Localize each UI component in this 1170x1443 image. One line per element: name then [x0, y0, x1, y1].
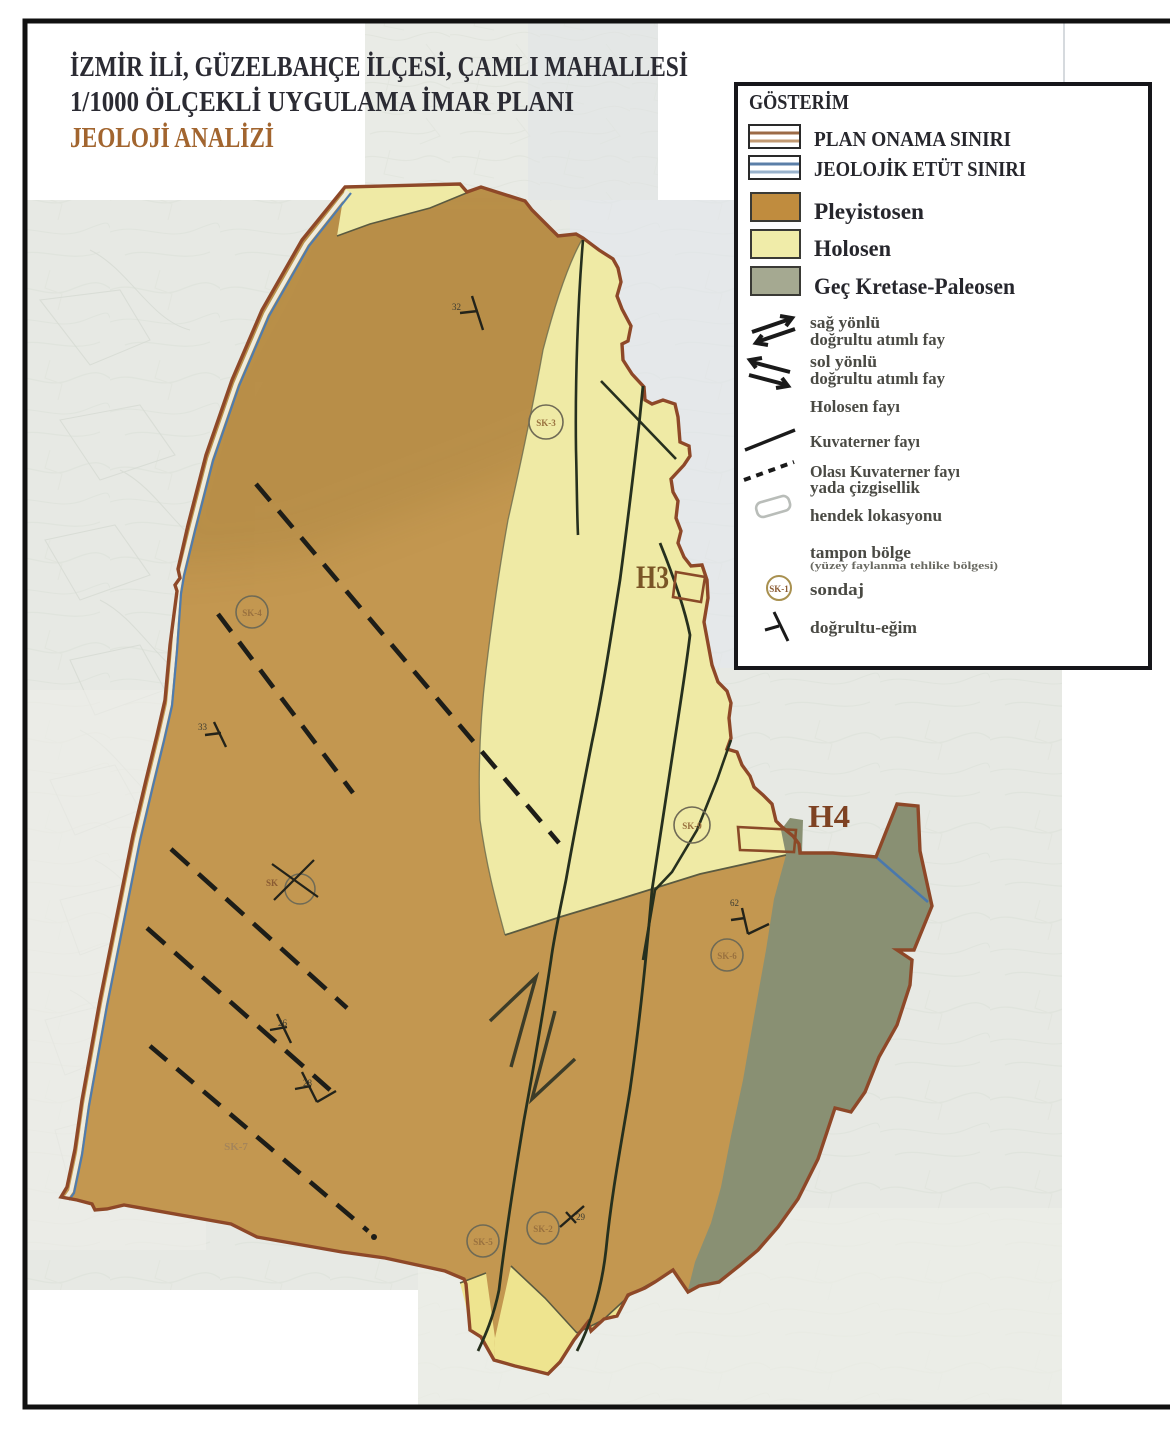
svg-text:Kuvaterner fayı: Kuvaterner fayı: [810, 432, 920, 451]
svg-text:SK-6: SK-6: [717, 951, 737, 961]
svg-text:GÖSTERİM: GÖSTERİM: [749, 90, 849, 114]
svg-text:Holosen: Holosen: [814, 236, 891, 261]
svg-text:28: 28: [303, 1078, 313, 1088]
svg-text:Holosen fayı: Holosen fayı: [810, 397, 900, 416]
svg-text:1/1000 ÖLÇEKLİ UYGULAMA İMAR P: 1/1000 ÖLÇEKLİ UYGULAMA İMAR PLANI: [70, 85, 574, 118]
svg-text:62: 62: [730, 898, 739, 908]
svg-text:SK-4: SK-4: [242, 608, 262, 618]
svg-text:33: 33: [198, 722, 208, 732]
svg-text:doğrultu atımlı fay: doğrultu atımlı fay: [810, 369, 945, 388]
svg-text:yada çizgisellik: yada çizgisellik: [810, 478, 921, 497]
svg-text:26: 26: [278, 1018, 288, 1028]
svg-text:32: 32: [452, 302, 461, 312]
svg-text:JEOLOJİ ANALİZİ: JEOLOJİ ANALİZİ: [70, 121, 274, 154]
svg-text:İZMİR İLİ, GÜZELBAHÇE İLÇESİ,: İZMİR İLİ, GÜZELBAHÇE İLÇESİ, ÇAMLI MAHA…: [70, 50, 688, 83]
svg-text:29: 29: [576, 1212, 586, 1222]
svg-text:JEOLOJİK ETÜT SINIRI: JEOLOJİK ETÜT SINIRI: [814, 157, 1026, 181]
svg-text:SK-7: SK-7: [224, 1141, 248, 1153]
svg-text:H3: H3: [636, 560, 669, 596]
svg-text:SK-3: SK-3: [536, 418, 556, 428]
svg-text:hendek lokasyonu: hendek lokasyonu: [810, 506, 942, 525]
svg-text:SK-5: SK-5: [473, 1237, 493, 1247]
svg-text:Geç Kretase-Paleosen: Geç Kretase-Paleosen: [814, 274, 1015, 299]
svg-text:SK-9: SK-9: [682, 821, 702, 831]
svg-text:sondaj: sondaj: [810, 580, 864, 599]
svg-text:SK: SK: [266, 878, 278, 888]
svg-text:PLAN ONAMA SINIRI: PLAN ONAMA SINIRI: [814, 127, 1011, 151]
svg-text:SK-2: SK-2: [533, 1224, 553, 1234]
svg-text:Pleyistosen: Pleyistosen: [814, 199, 924, 224]
svg-text:doğrultu-eğim: doğrultu-eğim: [810, 618, 917, 637]
svg-text:H4: H4: [808, 798, 850, 834]
svg-text:SK-1: SK-1: [769, 584, 789, 594]
svg-text:doğrultu atımlı fay: doğrultu atımlı fay: [810, 330, 945, 349]
svg-text:(yüzey faylanma tehlike bölges: (yüzey faylanma tehlike bölgesi): [810, 560, 998, 572]
